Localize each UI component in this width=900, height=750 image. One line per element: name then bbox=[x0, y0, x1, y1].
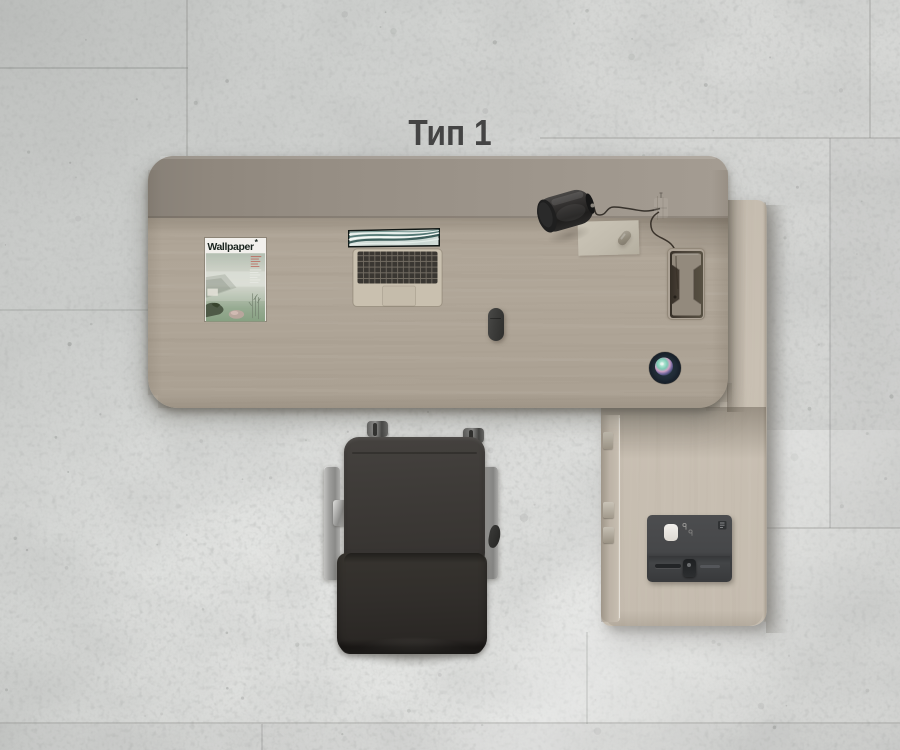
svg-text:Wallpaper: Wallpaper bbox=[207, 241, 254, 253]
